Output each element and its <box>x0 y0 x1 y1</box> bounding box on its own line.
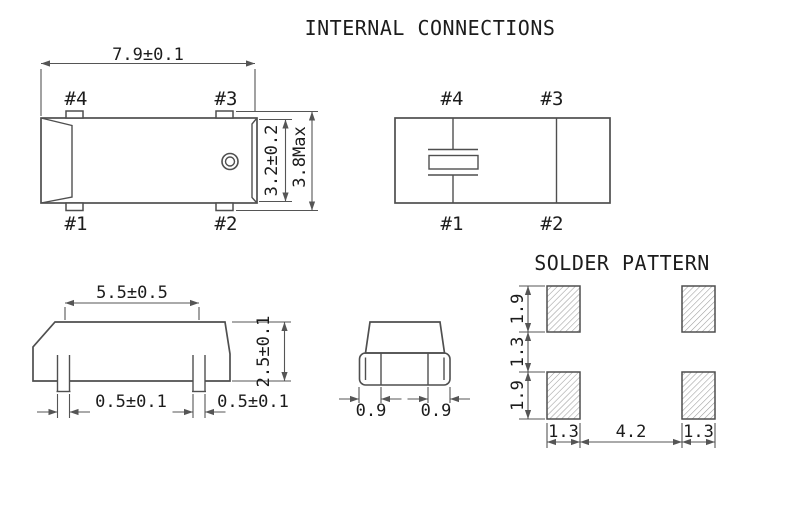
solder-pattern-title: SOLDER PATTERN <box>534 251 710 275</box>
dim-body-width-label: 3.2±0.2 <box>262 125 282 197</box>
dim-end-lead-right: 0.9 <box>408 387 471 421</box>
datasheet-drawing-page: 7.9±0.1 #4 #3 #1 #2 3.2±0.2 3 <box>0 0 792 520</box>
terminal-pad-2 <box>216 203 233 211</box>
dim-lead-spacing: 5.5±0.5 <box>65 283 199 320</box>
dim-column-gap-label: 4.2 <box>616 422 647 442</box>
dim-lead-width-left: 0.5±0.1 <box>37 392 167 418</box>
dim-length-label: 7.9±0.1 <box>112 45 184 65</box>
dim-pad-height-top-label: 1.9 <box>508 294 528 325</box>
terminal-pad-1 <box>66 203 83 211</box>
dim-body-width: 3.2±0.2 <box>259 120 292 202</box>
technical-drawing: 7.9±0.1 #4 #3 #1 #2 3.2±0.2 3 <box>0 0 792 520</box>
solder-pad-bottom-left <box>547 372 580 419</box>
internal-pin2-label: #2 <box>541 213 564 235</box>
internal-connections-view: INTERNAL CONNECTIONS #4 #3 #1 #2 <box>305 16 610 235</box>
top-view-pin3-label: #3 <box>215 88 238 110</box>
internal-connections-outline <box>395 118 610 203</box>
dim-overall-width-label: 3.8Max <box>290 126 310 187</box>
lead-left <box>57 355 71 392</box>
top-view-pin4-label: #4 <box>65 88 88 110</box>
dim-row-gap-label: 1.3 <box>508 337 528 368</box>
dim-pad-width-right-label: 1.3 <box>683 422 714 442</box>
dim-body-height: 2.5±0.1 <box>232 316 291 388</box>
dim-end-lead-right-label: 0.9 <box>421 401 452 421</box>
solder-pad-top-left <box>547 286 580 332</box>
dim-lead-width-right: 0.5±0.1 <box>173 392 289 418</box>
dim-lead-spacing-label: 5.5±0.5 <box>96 283 168 303</box>
dim-end-lead-left-label: 0.9 <box>356 401 387 421</box>
dim-lead-width-right-label: 0.5±0.1 <box>217 392 289 412</box>
crystal-symbol <box>428 118 478 203</box>
top-view-pin1-label: #1 <box>65 213 88 235</box>
end-view: 0.9 0.9 <box>339 322 470 421</box>
package-body-end-view <box>366 322 445 353</box>
internal-connections-title: INTERNAL CONNECTIONS <box>305 16 556 40</box>
dim-lead-width-left-label: 0.5±0.1 <box>95 392 167 412</box>
top-view-pin2-label: #2 <box>215 213 238 235</box>
top-view: 7.9±0.1 #4 #3 #1 #2 3.2±0.2 3 <box>41 45 318 235</box>
lead-right <box>192 355 206 392</box>
internal-pin4-label: #4 <box>441 88 464 110</box>
dim-end-lead-left: 0.9 <box>339 387 402 421</box>
dim-solder-vertical: 1.9 1.3 1.9 <box>508 286 545 419</box>
internal-pin1-label: #1 <box>441 213 464 235</box>
internal-pin3-label: #3 <box>541 88 564 110</box>
terminal-pad-4 <box>66 111 83 118</box>
solder-pad-top-right <box>682 286 715 332</box>
dim-pad-height-bottom-label: 1.9 <box>508 380 528 411</box>
side-view: 5.5±0.5 2.5±0.1 <box>33 283 291 418</box>
dim-solder-horizontal: 1.3 4.2 1.3 <box>547 422 715 448</box>
solder-pad-bottom-right <box>682 372 715 419</box>
solder-pattern-view: SOLDER PATTERN 1.9 1.3 1.9 1.3 <box>508 251 715 448</box>
dim-body-height-label: 2.5±0.1 <box>254 316 274 388</box>
holder-base <box>360 353 451 385</box>
dim-pad-width-left-label: 1.3 <box>548 422 579 442</box>
terminal-pad-3 <box>216 111 233 118</box>
package-body-top-view <box>41 118 257 203</box>
